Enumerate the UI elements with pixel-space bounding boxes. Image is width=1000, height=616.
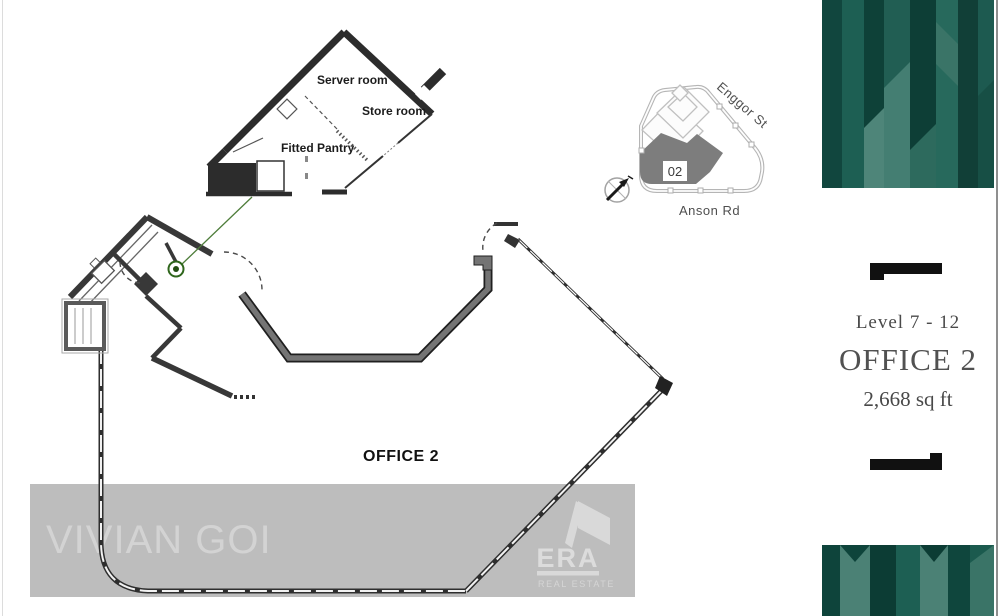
site-map: 02 Enggor St Anson Rd [605, 79, 771, 218]
corridor-wall [242, 256, 492, 358]
inset-wall-right-dash [383, 143, 398, 156]
door-arc-right [483, 223, 497, 251]
inset-mark-2 [305, 173, 308, 179]
era-logo-text: ERA [536, 543, 599, 573]
map-tick [668, 188, 673, 193]
partition-c [152, 328, 181, 358]
map-tick [698, 188, 703, 193]
decorative-bracket-top [870, 263, 942, 280]
inset-wall-right-2 [345, 156, 383, 188]
teal-pattern-bottom [822, 545, 994, 616]
unit-name-text: OFFICE 2 [814, 342, 1000, 378]
inset-wall-stub [424, 71, 443, 90]
store-room-label: Store room [362, 104, 426, 118]
office-label: OFFICE 2 [363, 448, 439, 465]
partition-b [146, 296, 181, 328]
listing-info: Level 7 - 12 OFFICE 2 2,668 sq ft [814, 312, 1000, 412]
decorative-bracket-bottom [870, 453, 942, 470]
entrance-rooms [62, 217, 258, 397]
map-tick [728, 188, 733, 193]
map-unit-label: 02 [668, 164, 682, 179]
entry-wall-b [147, 217, 212, 254]
map-tick [639, 148, 644, 153]
inset-detail: Server room Store room Fitted Pantry [206, 32, 443, 194]
flyer-canvas: VIVIAN GOI ERA REAL ESTATE [0, 0, 1000, 616]
inset-fixture [277, 99, 297, 119]
map-tick [717, 104, 722, 109]
level-text: Level 7 - 12 [814, 312, 1000, 334]
area-text: 2,668 sq ft [814, 387, 1000, 412]
corridor-step [474, 256, 492, 270]
teal-pattern-top [822, 0, 994, 188]
era-logo-bar [537, 571, 599, 576]
inset-mark-1 [305, 156, 308, 162]
wall-connector [504, 234, 520, 248]
page-edge-left [2, 0, 3, 616]
partition-e [166, 243, 176, 262]
inset-wall-right-1 [398, 114, 432, 143]
agent-watermark: VIVIAN GOI [46, 518, 272, 562]
door-arc-entry [224, 252, 262, 290]
callout-leader-line [181, 197, 252, 265]
north-arrow-icon [605, 176, 633, 202]
era-tagline: REAL ESTATE [538, 579, 615, 589]
callout-dot-icon [173, 266, 179, 272]
fitted-pantry-label: Fitted Pantry [281, 141, 355, 155]
inset-solid-block [208, 163, 256, 193]
partition-d [152, 358, 232, 396]
map-tick [733, 123, 738, 128]
street-anson-label: Anson Rd [679, 203, 740, 218]
north-flag [628, 176, 633, 179]
map-tick [749, 142, 754, 147]
inset-partition-dash [305, 96, 337, 129]
page-edge-right [996, 0, 998, 616]
server-room-label: Server room [317, 73, 388, 87]
corridor-fill [242, 263, 488, 358]
service-ledge [66, 303, 104, 349]
inset-wall-topleft [225, 32, 344, 151]
inset-white-box [257, 161, 284, 191]
